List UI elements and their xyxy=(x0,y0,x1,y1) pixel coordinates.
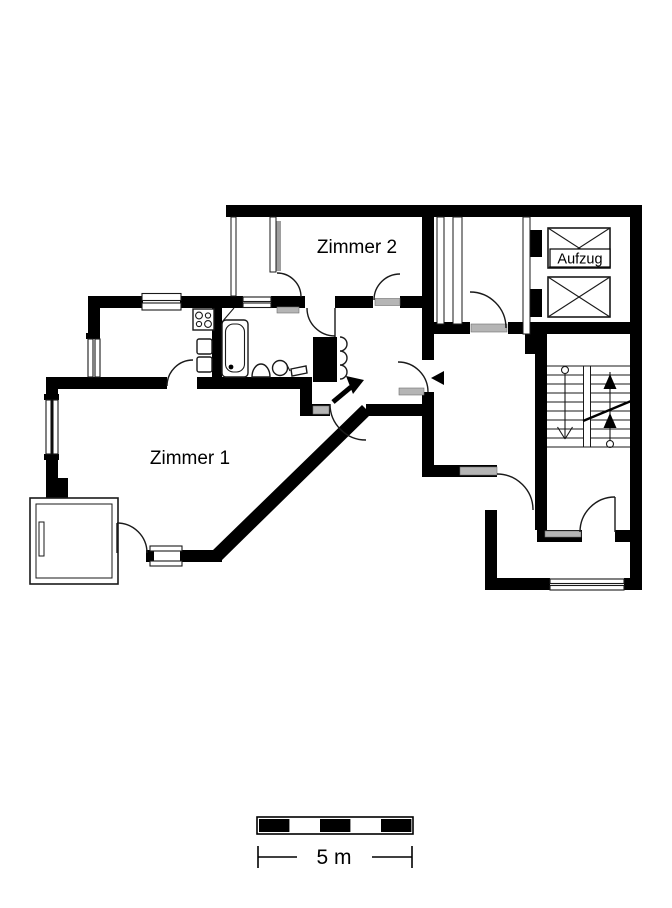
scale-label: 5 m xyxy=(316,846,351,869)
loggia-wall xyxy=(231,217,236,296)
landing-sill-icon xyxy=(545,531,581,537)
floor-plan-page: Aufzug xyxy=(0,0,672,908)
entrance-triangle-icon xyxy=(431,371,444,385)
bathtub-icon xyxy=(222,320,248,377)
loggia-sill-icon xyxy=(243,297,271,308)
bath-door-icon xyxy=(307,308,335,336)
shaft-icon xyxy=(437,217,444,324)
kitchen-sink-icon xyxy=(197,339,212,372)
building-entrance-door-icon xyxy=(497,474,533,510)
landing-door-icon xyxy=(580,497,615,532)
zimmer2-door-icon xyxy=(374,274,400,300)
shaft-icon xyxy=(453,217,462,324)
floor-plan-drawing: Aufzug xyxy=(0,0,672,908)
elevator-label: Aufzug xyxy=(557,252,602,268)
washbasin-icon xyxy=(252,364,270,377)
entrance-door-icon xyxy=(398,362,428,392)
bath-sill-icon xyxy=(277,307,299,313)
hall-sill-icon xyxy=(313,406,329,414)
zimmer1-left-window-icon xyxy=(44,394,59,460)
elevator-shaft-icon xyxy=(548,277,610,317)
staircase-icon xyxy=(547,366,636,448)
storage-room-door-icon xyxy=(470,292,506,328)
zimmer1-bottom-window-icon xyxy=(150,546,182,566)
entrance-arrow-icon xyxy=(333,376,364,402)
stairs-down-arrow-icon xyxy=(558,367,573,440)
loggia-door-icon xyxy=(277,273,301,297)
kitchen-left-window-icon xyxy=(86,333,100,383)
kitchen-top-window-icon xyxy=(142,294,181,311)
zimmer1-label: Zimmer 1 xyxy=(150,448,230,469)
accordion-door-icon xyxy=(340,337,347,379)
stove-icon xyxy=(193,309,214,330)
zimmer2-label: Zimmer 2 xyxy=(317,237,397,258)
balcony-icon xyxy=(30,498,118,584)
balcony-door-icon xyxy=(117,523,147,553)
corridor-top-sill-icon xyxy=(460,467,497,475)
kitchen-door-icon xyxy=(167,360,193,386)
toilet-icon xyxy=(273,361,308,377)
thin-walls xyxy=(30,217,530,584)
scale-bar: 5 m xyxy=(257,817,413,869)
corridor-window-icon xyxy=(545,578,629,590)
elevator-block: Aufzug xyxy=(548,228,610,317)
zimmer2-window-icon xyxy=(277,221,282,271)
